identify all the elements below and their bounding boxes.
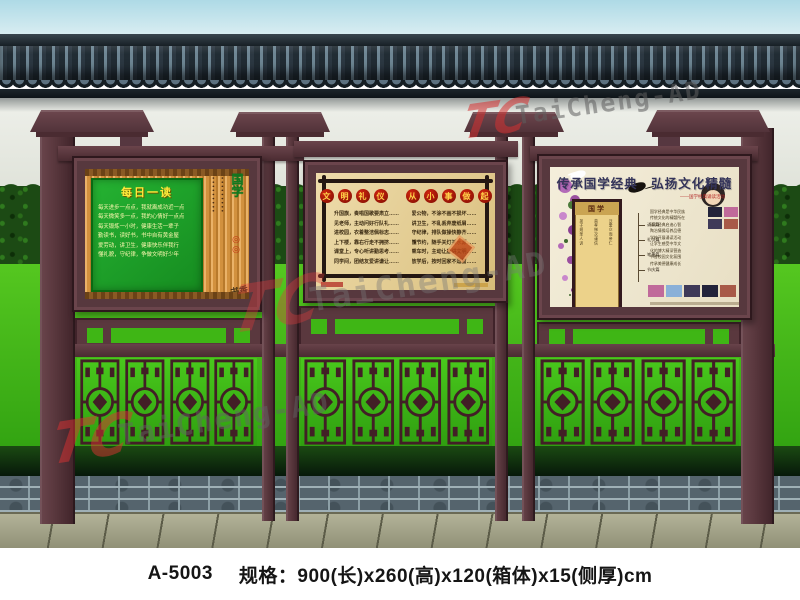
- post-mid-right-b: [522, 135, 535, 521]
- title-badge: 小: [424, 189, 438, 203]
- scroll-text-col: 弟子规圣人训: [580, 219, 585, 299]
- roof-cap-mid-left-lip: [236, 132, 324, 137]
- roof-tiles: [0, 46, 800, 80]
- notice-panel-left-content: 每日一读 每天进步一点点，我就离成功近一点 每天微笑多一点，我的心情好一点点 每…: [85, 169, 249, 299]
- lattice-pattern: [351, 358, 396, 446]
- lattice-pattern: [213, 358, 255, 446]
- model-number: A-5003: [148, 563, 213, 585]
- title-badge: 礼: [356, 189, 370, 203]
- rule-line: 升国旗，奏唱国歌要肃立……: [334, 210, 400, 217]
- dot-column: •••••••••: [209, 177, 215, 214]
- lattice-fence-left: [77, 358, 257, 446]
- roof-cap-left: [30, 110, 154, 132]
- title-badge: 做: [460, 189, 474, 203]
- maker-mark: [321, 282, 343, 287]
- lattice-pattern: [589, 358, 636, 446]
- scroll-rod: [318, 179, 493, 183]
- rule-line: 见老师，主动问好行队礼……: [334, 220, 400, 227]
- right-panel-paragraph: 国学经典是中华民族 传统文化的精髓所在 诵读经典启迪心智 陶冶情操培养品德 学校…: [650, 209, 704, 267]
- scroll-header: 国学: [575, 202, 619, 215]
- rule-line: 讲卫生，不乱丢弃废纸屑……: [412, 220, 478, 227]
- left-panel-title: 每日一读: [98, 184, 196, 200]
- post-mid-left-a: [262, 135, 275, 521]
- scroll-text-col: 泛爱众而亲仁: [609, 219, 614, 299]
- notice-panel-middle: 文 明 礼 仪 从 小 事 做 起 升国旗，奏唱国歌要肃立…… 爱公物，不涂不画…: [303, 160, 508, 303]
- left-panel-line: 懂礼貌，守纪律，争做文明好少年: [98, 251, 196, 260]
- fence-top-rail: [40, 344, 775, 357]
- scroll-text: 弟子规圣人训 首孝悌次谨信 泛爱众而亲仁: [575, 215, 619, 299]
- lattice-pattern: [303, 358, 348, 446]
- right-panel-subtitle: ——国学经典诵读活动: [680, 194, 725, 200]
- roof-cap-mid-right-lip: [470, 132, 558, 137]
- left-panel-line: 每天微笑多一点，我的心情好一点点: [98, 213, 196, 222]
- roof-cap-mid-right: [464, 112, 564, 132]
- dot-column: •••••••••: [218, 177, 224, 214]
- roof-cap-right: [646, 110, 770, 132]
- roof-cap-mid-left: [230, 112, 330, 132]
- top-bar-middle: [294, 141, 518, 157]
- middle-panel-title: 文 明 礼 仪 从 小 事 做 起: [316, 189, 495, 203]
- rule-line: 守纪律，排队做操快静齐……: [412, 229, 478, 236]
- maker-mark: [454, 283, 488, 287]
- rule-line: 上下楼，靠右行走不拥挤……: [334, 239, 400, 246]
- roof-drip-tiles: [0, 80, 800, 89]
- diagram-label: 节庆篇: [639, 267, 679, 273]
- lattice-fence-middle: [301, 358, 492, 446]
- roof-shadow: [0, 98, 800, 112]
- lattice-pattern: [79, 358, 121, 446]
- lattice-pattern: [640, 358, 687, 446]
- left-panel-line: 爱劳动，讲卫生，健康快乐伴我行: [98, 242, 196, 251]
- left-panel-calligraphy: 书香: [229, 283, 249, 299]
- lattice-pattern: [124, 358, 166, 446]
- stone-pavement: [0, 512, 800, 550]
- left-panel-line: 每天进步一点点，我就离成功近一点: [98, 204, 196, 213]
- lattice-fence-right: [537, 358, 739, 446]
- left-panel-line: 每天锻炼一小时，健康生活一辈子: [98, 223, 196, 232]
- left-panel-seal-marks: ◎◎: [232, 235, 242, 255]
- lattice-pattern: [398, 358, 443, 446]
- lattice-pattern: [446, 358, 491, 446]
- brick-wall-base: [0, 476, 800, 512]
- apron-panel-middle: [299, 306, 495, 346]
- roof-eave: [0, 89, 800, 98]
- title-badge: 事: [442, 189, 456, 203]
- rule-line: 进校园，衣着整洁佩标志……: [334, 229, 400, 236]
- spec-text: 规格：900(长)x260(高)x120(箱体)x15(侧厚)cm: [239, 561, 653, 588]
- rule-line: 爱公物，不涂不画不损坏……: [412, 210, 478, 217]
- post-mid-left-b: [286, 135, 299, 521]
- scroll-rod: [318, 274, 493, 278]
- photo-strip: [648, 285, 736, 297]
- notice-panel-right-content: 传承国学经典 弘扬文化精髓 ——国学经典诵读活动 国学 弟子规圣人训 首孝悌次谨…: [550, 167, 739, 307]
- paragraph-line: 传承美德健康成长: [650, 261, 704, 267]
- title-badge: 文: [320, 189, 334, 203]
- right-panel-title: 传承国学经典 弘扬文化精髓: [550, 173, 739, 192]
- title-badge: 明: [338, 189, 352, 203]
- left-panel-side-title: 国学: [229, 173, 246, 197]
- hanging-scroll: 国学 弟子规圣人训 首孝悌次谨信 泛爱众而亲仁: [572, 199, 622, 307]
- notice-panel-right: 传承国学经典 弘扬文化精髓 ——国学经典诵读活动 国学 弟子规圣人训 首孝悌次谨…: [537, 154, 752, 320]
- product-photo-scene: 每日一读 每天进步一点点，我就离成功近一点 每天微笑多一点，我的心情好一点点 每…: [0, 0, 800, 600]
- title-badge: 从: [406, 189, 420, 203]
- lattice-pattern: [169, 358, 211, 446]
- photo-thumbnails: [708, 207, 738, 229]
- rule-line: 放学后，按时回家不逗留……: [412, 258, 478, 265]
- title-badge: 仪: [374, 189, 388, 203]
- post-left: [40, 128, 75, 524]
- title-badge: 起: [478, 189, 492, 203]
- product-caption: A-5003 规格：900(长)x260(高)x120(箱体)x15(侧厚)cm: [0, 548, 800, 600]
- left-panel-line: 勤读书，读好书，书中自有黄金屋: [98, 232, 196, 241]
- grass-shadow: [0, 446, 800, 476]
- scroll-text-col: 首孝悌次谨信: [594, 219, 599, 299]
- notice-panel-middle-content: 文 明 礼 仪 从 小 事 做 起 升国旗，奏唱国歌要肃立…… 爱公物，不涂不画…: [316, 173, 495, 290]
- rule-line: 同学间，团结友爱讲谦让……: [334, 258, 400, 265]
- notice-panel-left: 每日一读 每天进步一点点，我就离成功近一点 每天微笑多一点，我的心情好一点点 每…: [72, 156, 262, 312]
- green-blackboard: 每日一读 每天进步一点点，我就离成功近一点 每天微笑多一点，我的心情好一点点 每…: [91, 178, 203, 292]
- lattice-pattern: [539, 358, 586, 446]
- lattice-pattern: [690, 358, 737, 446]
- right-panel-footer-line: [650, 302, 739, 305]
- rule-line: 课堂上，专心听讲勤思考……: [334, 248, 400, 255]
